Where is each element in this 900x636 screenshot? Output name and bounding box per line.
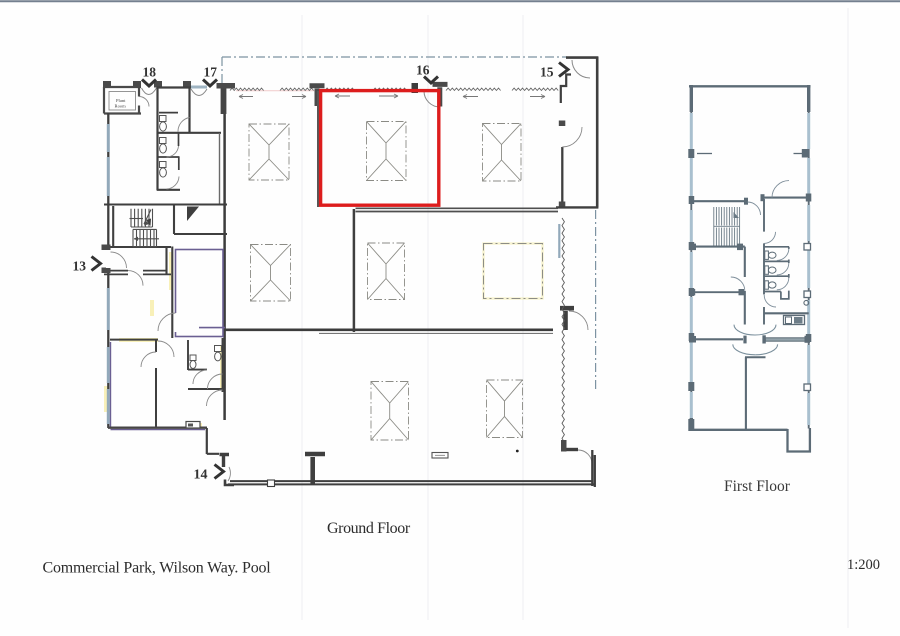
svg-text:Ground Floor: Ground Floor xyxy=(327,520,411,537)
svg-text:Room: Room xyxy=(115,104,127,109)
svg-text:13: 13 xyxy=(73,259,87,274)
svg-text:17: 17 xyxy=(204,65,218,80)
svg-text:18: 18 xyxy=(143,65,157,80)
svg-text:14: 14 xyxy=(194,468,208,483)
svg-text:1:200: 1:200 xyxy=(847,557,880,573)
svg-text:First Floor: First Floor xyxy=(724,478,791,495)
svg-text:Commercial Park, Wilson Way. P: Commercial Park, Wilson Way. Pool xyxy=(43,560,272,577)
svg-text:15: 15 xyxy=(540,65,554,80)
svg-text:Plant: Plant xyxy=(116,98,126,103)
svg-text:16: 16 xyxy=(416,63,430,78)
